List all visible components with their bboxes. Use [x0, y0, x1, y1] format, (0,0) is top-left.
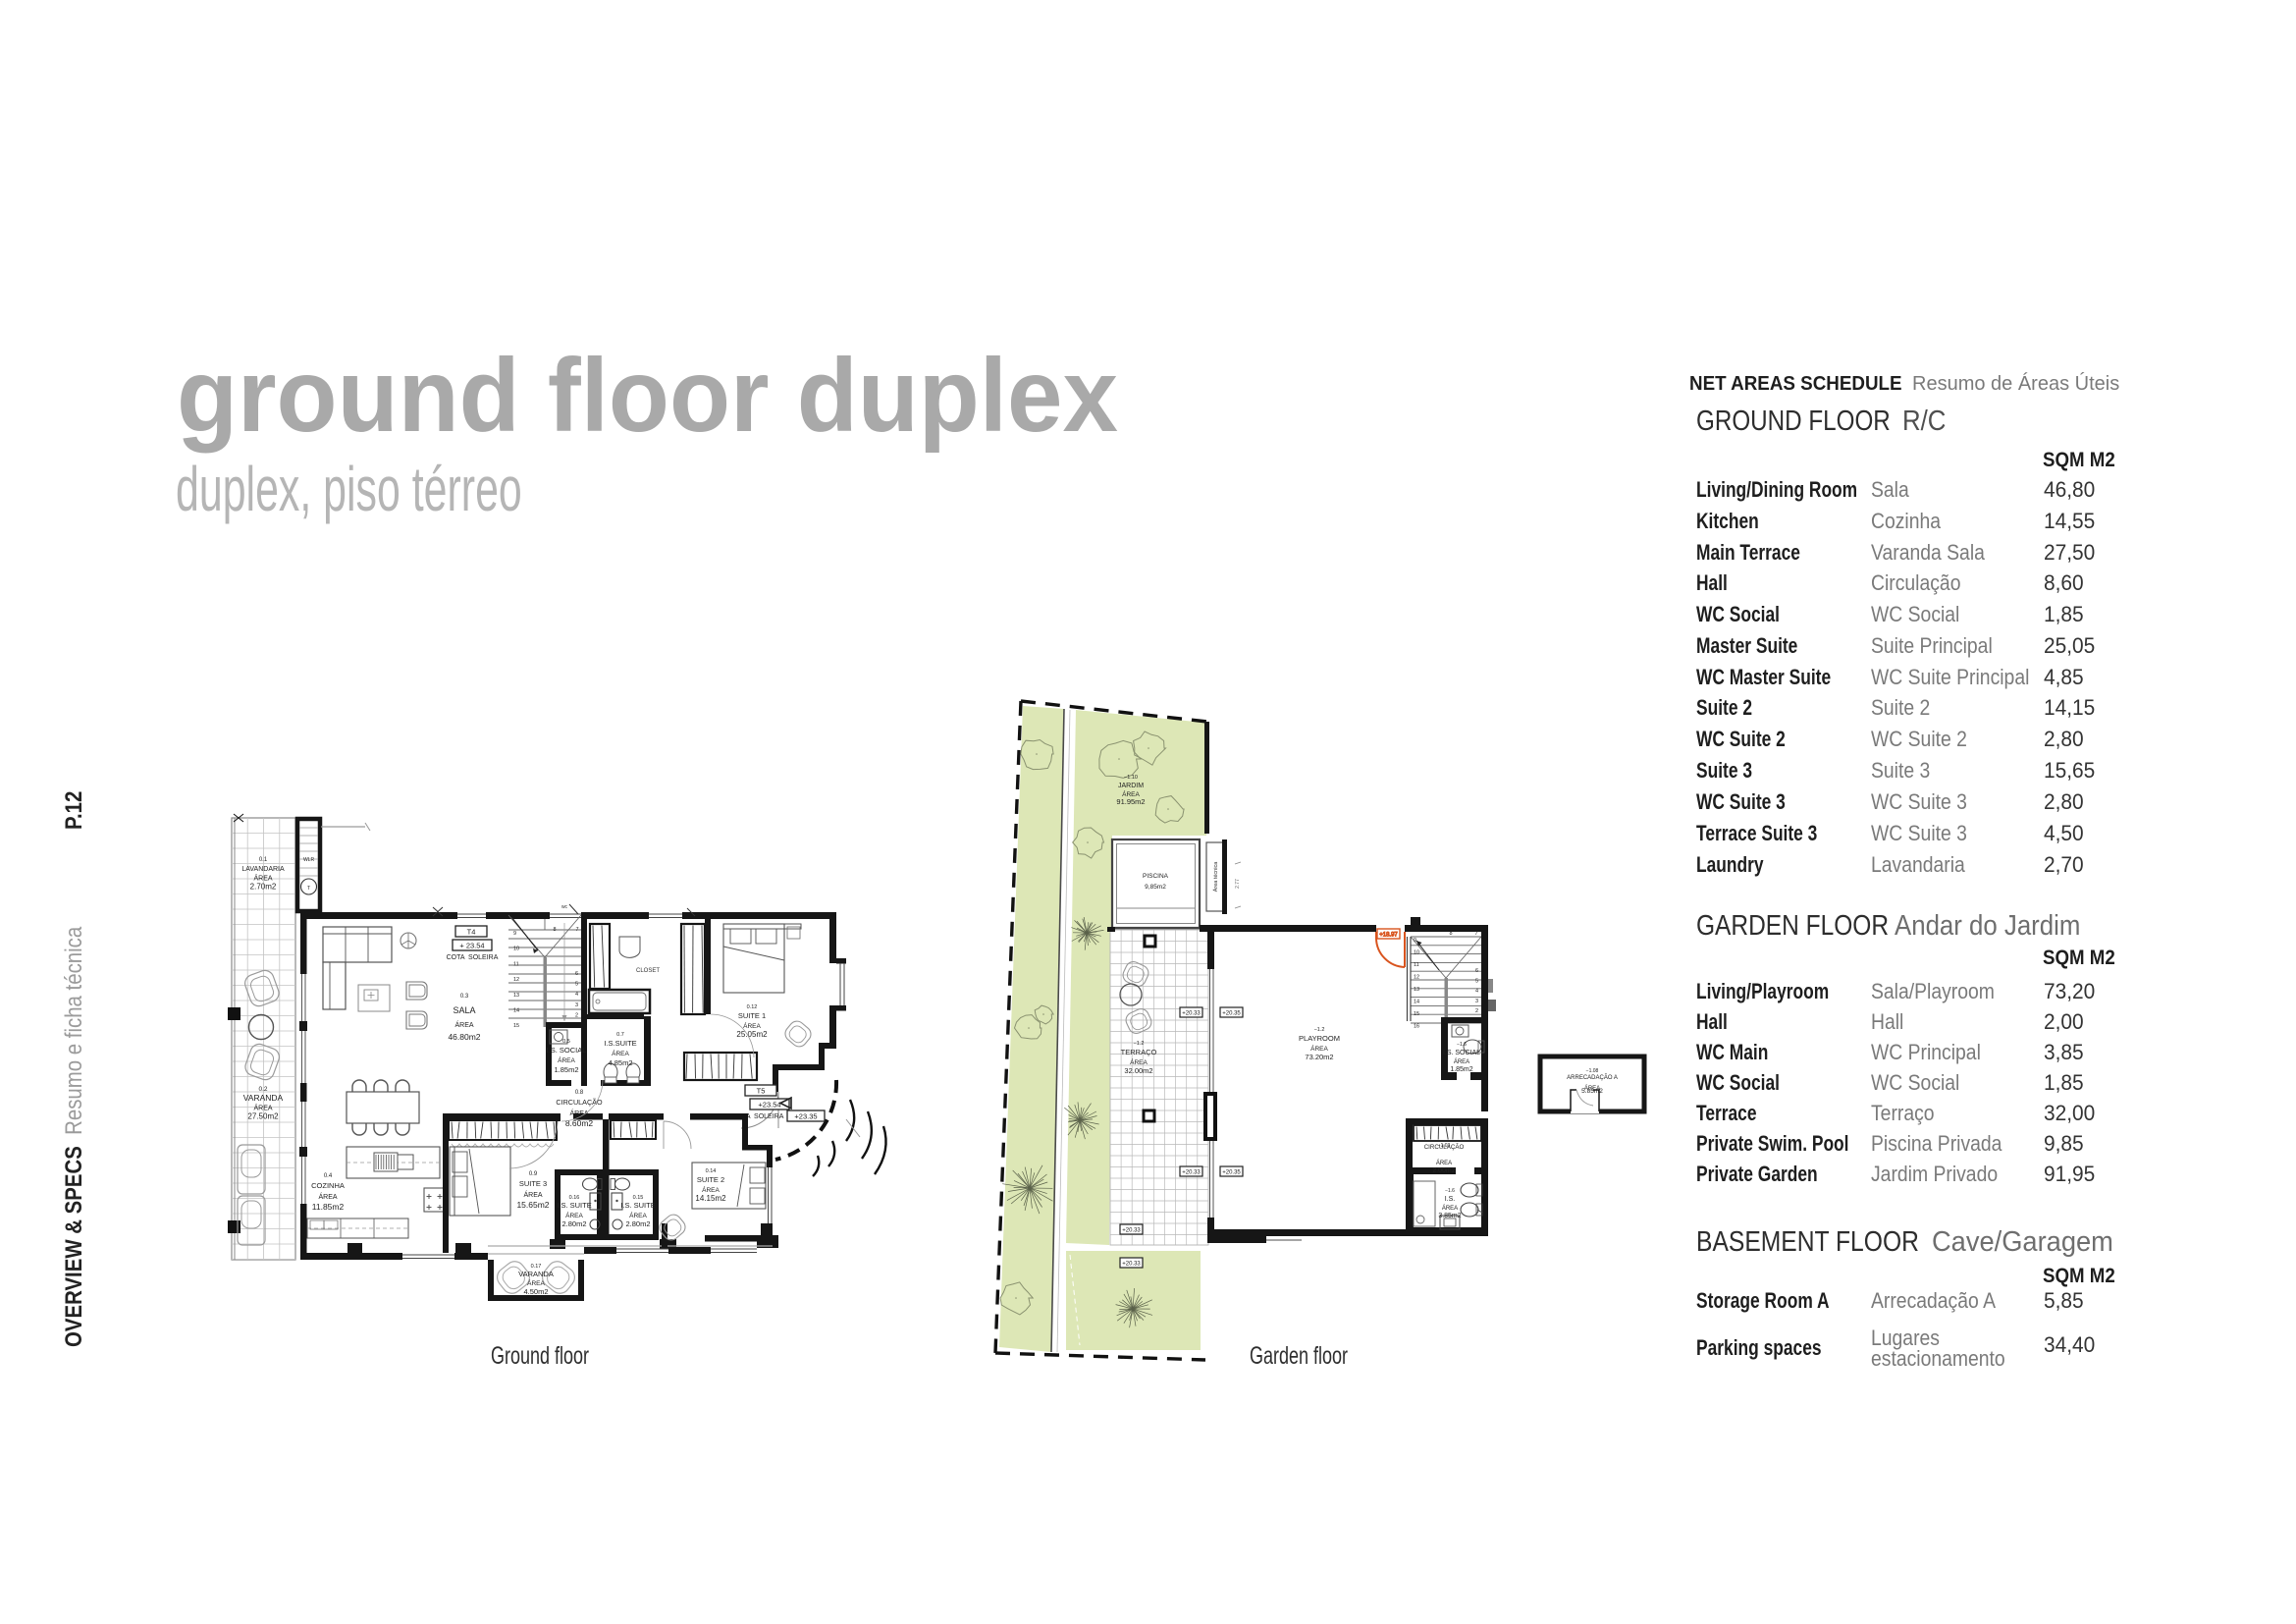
svg-text:ÁREA: ÁREA	[1454, 1058, 1469, 1065]
svg-text:1.85m2: 1.85m2	[554, 1065, 578, 1074]
svg-text:ÁREA: ÁREA	[454, 1020, 473, 1029]
svg-text:COTA SOLEIRA: COTA SOLEIRA	[447, 954, 499, 961]
svg-text:3: 3	[1475, 999, 1478, 1004]
svg-text:ÁREA: ÁREA	[629, 1211, 647, 1219]
svg-text:I.S. SOCIAL: I.S. SOCIAL	[1443, 1050, 1480, 1056]
svg-text:+ 23.54: + 23.54	[459, 942, 484, 950]
svg-text:2.80m2: 2.80m2	[561, 1219, 586, 1228]
svg-text:2.80m2: 2.80m2	[625, 1219, 650, 1228]
svg-text:VARANDA: VARANDA	[243, 1093, 284, 1103]
svg-text:5: 5	[575, 982, 578, 988]
svg-text:9: 9	[513, 931, 516, 937]
svg-text:7: 7	[575, 927, 578, 933]
svg-text:14.15m2: 14.15m2	[695, 1194, 726, 1203]
svg-text:10: 10	[513, 947, 519, 952]
svg-text:ÁREA: ÁREA	[1130, 1057, 1148, 1066]
svg-text:−1.6: −1.6	[1445, 1188, 1455, 1194]
svg-text:0.5: 0.5	[562, 1039, 570, 1045]
svg-text:ÁREA: ÁREA	[1442, 1205, 1458, 1212]
svg-text:−1.10: −1.10	[1124, 775, 1138, 781]
svg-text:ÁREA: ÁREA	[318, 1192, 337, 1201]
svg-text:I.S.: I.S.	[1445, 1196, 1456, 1203]
svg-text:4: 4	[575, 992, 578, 998]
svg-text:Área técnica: Área técnica	[1212, 861, 1219, 893]
svg-text:14: 14	[513, 1008, 519, 1014]
svg-text:9,85m2: 9,85m2	[1145, 884, 1166, 891]
svg-text:ÁREA: ÁREA	[253, 874, 272, 883]
svg-text:COZINHA: COZINHA	[311, 1181, 345, 1190]
svg-text:16: 16	[1414, 1024, 1419, 1030]
svg-text:0.1: 0.1	[259, 857, 268, 863]
svg-text:−1.6: −1.6	[1457, 1042, 1467, 1048]
svg-text:T4: T4	[467, 928, 476, 937]
svg-text:TERRAÇO: TERRAÇO	[1121, 1048, 1157, 1056]
svg-text:2.00m2: 2.00m2	[1432, 1167, 1455, 1174]
svg-text:9: 9	[1414, 938, 1416, 944]
svg-text:0.14: 0.14	[706, 1168, 717, 1174]
svg-text:ÁREA: ÁREA	[702, 1185, 720, 1194]
svg-text:3: 3	[575, 1002, 578, 1008]
svg-text:ÁREA: ÁREA	[612, 1049, 629, 1057]
svg-text:6: 6	[1475, 968, 1478, 974]
svg-text:11.85m2: 11.85m2	[312, 1202, 345, 1212]
svg-text:PISCINA: PISCINA	[1143, 873, 1169, 880]
svg-text:0.2: 0.2	[258, 1086, 267, 1093]
svg-text:0.12: 0.12	[747, 1004, 758, 1010]
svg-text:46.80m2: 46.80m2	[448, 1032, 480, 1042]
svg-text:SALA: SALA	[453, 1005, 475, 1015]
svg-text:ÁREA: ÁREA	[253, 1104, 272, 1112]
svg-text:73.20m2: 73.20m2	[1305, 1053, 1333, 1061]
svg-text:0.7: 0.7	[616, 1032, 624, 1038]
svg-text:2: 2	[1475, 1008, 1478, 1014]
svg-text:+20.35: +20.35	[1222, 1011, 1241, 1017]
svg-text:3.85m2: 3.85m2	[1438, 1213, 1461, 1219]
svg-text:ÁREA: ÁREA	[558, 1056, 575, 1064]
svg-text:+20.33: +20.33	[1122, 1262, 1141, 1268]
svg-text:12: 12	[1414, 975, 1419, 981]
svg-text:13: 13	[1414, 987, 1419, 993]
svg-text:JARDIM: JARDIM	[1118, 783, 1144, 789]
svg-text:5.85m2: 5.85m2	[1581, 1088, 1603, 1095]
svg-text:I.S. SUITE: I.S. SUITE	[620, 1201, 655, 1210]
svg-text:ÁREA: ÁREA	[1436, 1160, 1452, 1166]
svg-text:0.4: 0.4	[324, 1173, 333, 1179]
svg-text:6: 6	[575, 971, 578, 977]
svg-text:+23.35: +23.35	[794, 1112, 817, 1121]
svg-text:15.65m2: 15.65m2	[516, 1200, 549, 1210]
svg-text:27.50m2: 27.50m2	[247, 1112, 279, 1121]
svg-text:12: 12	[513, 977, 519, 983]
svg-text:wc: wc	[561, 904, 568, 910]
svg-text:SUITE 1: SUITE 1	[738, 1011, 766, 1020]
svg-text:32.00m2: 32.00m2	[1124, 1066, 1152, 1075]
svg-text:SUITE 2: SUITE 2	[697, 1175, 724, 1184]
svg-text:−1.08: −1.08	[1586, 1068, 1599, 1074]
svg-text:+23.54: +23.54	[758, 1101, 780, 1110]
svg-text:14: 14	[1414, 1000, 1419, 1005]
svg-text:8: 8	[1449, 931, 1452, 937]
svg-text:25.05m2: 25.05m2	[736, 1030, 768, 1039]
svg-text:13: 13	[513, 993, 519, 999]
svg-text:VARANDA: VARANDA	[518, 1270, 554, 1278]
svg-text:11: 11	[1414, 962, 1419, 968]
svg-text:+20.33: +20.33	[1182, 1011, 1201, 1017]
svg-text:2.77: 2.77	[1235, 879, 1241, 889]
svg-text:CIRCULAÇÃO: CIRCULAÇÃO	[1424, 1144, 1465, 1151]
svg-text:2: 2	[575, 1012, 578, 1018]
svg-text:15: 15	[513, 1023, 519, 1029]
svg-text:I.S.SUITE: I.S.SUITE	[604, 1039, 636, 1048]
svg-text:0.9: 0.9	[529, 1171, 538, 1177]
svg-text:7: 7	[1474, 931, 1477, 937]
svg-text:PLAYROOM: PLAYROOM	[1299, 1034, 1340, 1043]
svg-text:4.50m2: 4.50m2	[523, 1287, 548, 1296]
svg-text:11: 11	[513, 961, 519, 967]
svg-text:5: 5	[1475, 978, 1478, 984]
svg-text:−1.2: −1.2	[1314, 1027, 1325, 1033]
svg-text:ÁREA: ÁREA	[523, 1190, 542, 1199]
svg-text:SUITE 3: SUITE 3	[519, 1179, 547, 1188]
svg-text:ARRECADAÇÃO A: ARRECADAÇÃO A	[1567, 1074, 1618, 1081]
svg-text:WLR: WLR	[303, 857, 315, 863]
svg-text:15: 15	[1414, 1011, 1419, 1017]
svg-text:+20.35: +20.35	[1222, 1170, 1241, 1176]
svg-text:CLOSET: CLOSET	[636, 968, 660, 974]
svg-text:8: 8	[553, 927, 556, 933]
svg-text:I.S. SOCIAL: I.S. SOCIAL	[547, 1046, 587, 1055]
svg-text:+20.33: +20.33	[1182, 1170, 1201, 1176]
svg-text:4: 4	[1475, 989, 1478, 995]
svg-text:10: 10	[1414, 950, 1419, 956]
svg-text:ÁREA: ÁREA	[743, 1021, 761, 1030]
svg-text:91.95m2: 91.95m2	[1116, 797, 1145, 806]
svg-text:+20.33: +20.33	[1122, 1228, 1141, 1234]
svg-text:1.85m2: 1.85m2	[1450, 1066, 1472, 1073]
svg-text:−1.2: −1.2	[1134, 1041, 1145, 1047]
svg-text:4.85m2: 4.85m2	[608, 1058, 632, 1067]
svg-text:0.8: 0.8	[575, 1090, 584, 1096]
svg-text:CIRCULAÇÃO: CIRCULAÇÃO	[556, 1098, 603, 1107]
svg-text:0.3: 0.3	[460, 994, 469, 1000]
svg-text:ÁREA: ÁREA	[527, 1278, 545, 1287]
svg-text:+18.97: +18.97	[1379, 933, 1398, 939]
svg-text:T5: T5	[757, 1087, 766, 1096]
svg-text:I.S. SUITE: I.S. SUITE	[557, 1201, 591, 1210]
svg-text:LAVANDARIA: LAVANDARIA	[241, 866, 285, 873]
svg-text:ÁREA: ÁREA	[1310, 1044, 1328, 1053]
svg-text:2.70m2: 2.70m2	[250, 883, 277, 892]
svg-text:ÁREA: ÁREA	[565, 1211, 583, 1219]
